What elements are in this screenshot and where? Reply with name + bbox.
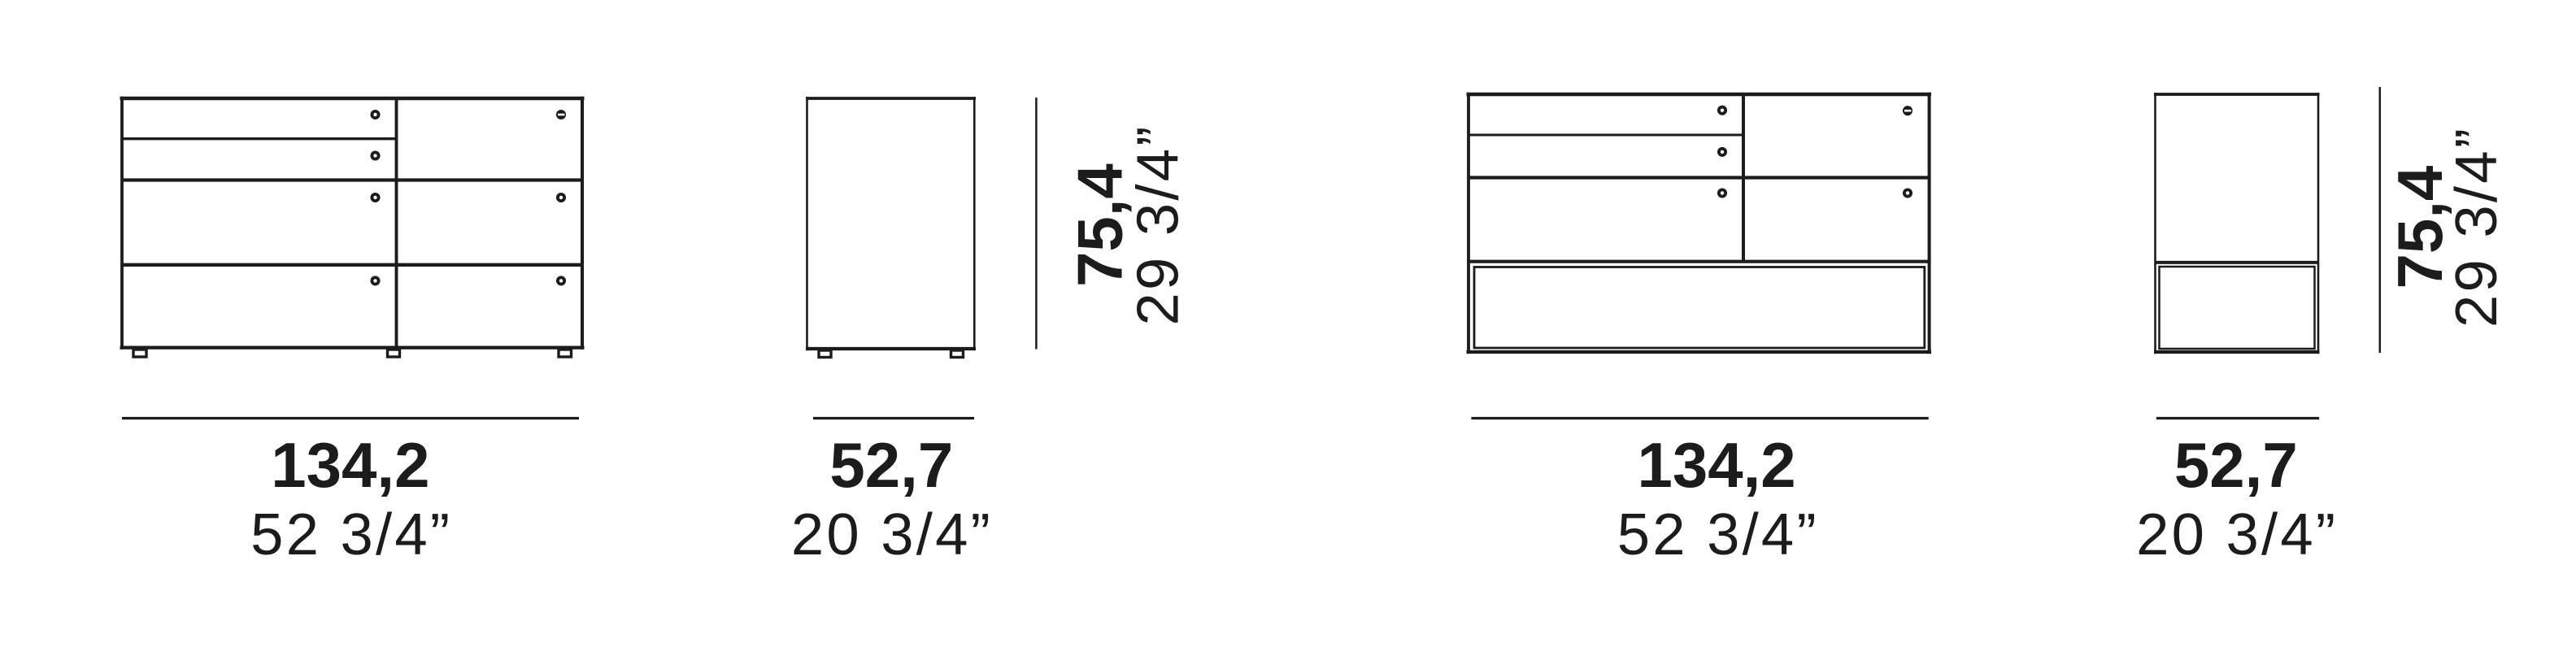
svg-text:134,2: 134,2 <box>1638 429 1796 501</box>
svg-text:29 3/4”: 29 3/4” <box>2443 126 2509 328</box>
svg-text:52 3/4”: 52 3/4” <box>250 502 452 567</box>
svg-text:20 3/4”: 20 3/4” <box>2136 502 2338 567</box>
svg-text:52 3/4”: 52 3/4” <box>1617 502 1819 567</box>
svg-text:52,7: 52,7 <box>2174 429 2298 501</box>
svg-text:29 3/4”: 29 3/4” <box>1125 124 1191 325</box>
svg-text:134,2: 134,2 <box>271 429 429 501</box>
svg-text:52,7: 52,7 <box>829 429 953 501</box>
svg-text:20 3/4”: 20 3/4” <box>791 502 993 567</box>
